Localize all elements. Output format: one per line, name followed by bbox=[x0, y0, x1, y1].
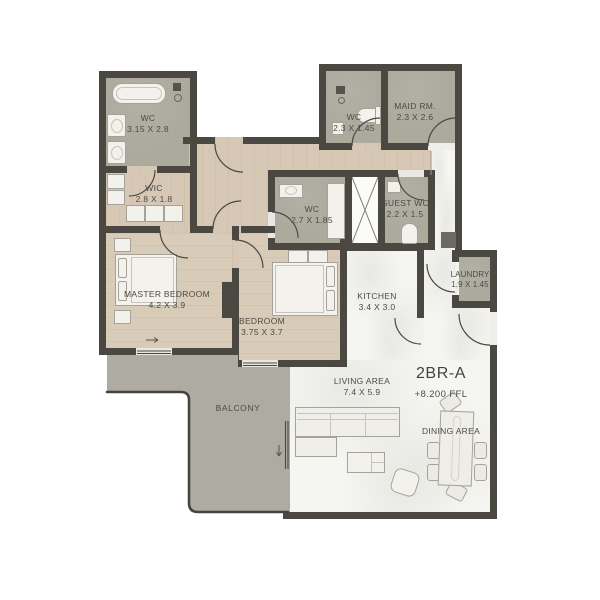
sofa-cushion-line bbox=[365, 414, 366, 436]
wall-segment bbox=[106, 166, 127, 173]
label-wc-shared: WC 2.7 X 1.85 bbox=[276, 204, 348, 226]
bathtub-basin bbox=[116, 87, 162, 100]
room-dims: 2.8 X 1.8 bbox=[112, 194, 196, 205]
wall-column bbox=[222, 282, 239, 318]
sliding-door-master bbox=[136, 348, 172, 355]
room-name: MASTER BEDROOM bbox=[124, 289, 210, 300]
room-name: BALCONY bbox=[200, 403, 276, 414]
door-opening bbox=[232, 240, 239, 268]
room-name: WC bbox=[276, 204, 348, 215]
hallway-corridor bbox=[189, 176, 268, 233]
label-bedroom: BEDROOM 3.75 X 3.7 bbox=[219, 316, 305, 338]
door-opening bbox=[352, 143, 382, 151]
label-wc-small: WC 2.3 X 1.45 bbox=[324, 112, 384, 134]
room-name: WC bbox=[324, 112, 384, 123]
wall-segment bbox=[232, 226, 239, 240]
wall-segment bbox=[388, 143, 428, 150]
wall-segment bbox=[283, 367, 290, 420]
door-opening bbox=[428, 143, 456, 150]
pillow bbox=[118, 258, 127, 278]
room-name: WC bbox=[106, 113, 190, 124]
dining-chair bbox=[474, 442, 487, 459]
sliding-door-living bbox=[283, 420, 290, 470]
floor-plan: WC 3.15 X 2.8 WIC 2.8 X 1.8 MASTER BEDRO… bbox=[0, 0, 600, 600]
wall-segment bbox=[268, 170, 275, 212]
door-opening bbox=[398, 170, 424, 177]
wall-segment bbox=[417, 244, 424, 318]
wall-segment bbox=[99, 348, 136, 355]
door-opening bbox=[160, 226, 190, 233]
closet-shelf bbox=[164, 205, 183, 222]
unit-type: 2BR-A bbox=[395, 365, 487, 383]
wall-segment bbox=[319, 64, 462, 71]
wall-segment bbox=[172, 348, 239, 355]
room-dims: 2.3 X 1.45 bbox=[324, 123, 384, 134]
wall-segment bbox=[157, 166, 197, 173]
sink-basin bbox=[285, 186, 297, 195]
door-opening bbox=[268, 212, 275, 238]
label-wc-master: WC 3.15 X 2.8 bbox=[106, 113, 190, 135]
room-dims: 7.4 X 5.9 bbox=[320, 387, 404, 398]
wall-segment bbox=[340, 244, 424, 251]
sofa-seat-line bbox=[297, 419, 398, 420]
room-dims: 1.9 X 1.45 bbox=[438, 280, 502, 290]
room-dims: 2.2 X 1.5 bbox=[369, 209, 441, 220]
sliding-door-bedroom bbox=[242, 360, 278, 367]
wall-segment bbox=[452, 250, 459, 262]
room-name: GUEST WC bbox=[369, 198, 441, 209]
label-master: MASTER BEDROOM 4.2 X 3.9 bbox=[124, 289, 210, 311]
sink-basin bbox=[111, 146, 123, 160]
closet-shelf bbox=[145, 205, 164, 222]
pillow bbox=[326, 290, 335, 311]
nightstand bbox=[114, 310, 131, 324]
foyer-cabinet bbox=[441, 232, 456, 248]
sofa-chaise bbox=[295, 437, 337, 457]
closet-shelf bbox=[126, 205, 145, 222]
shower-drain-icon bbox=[174, 94, 182, 102]
label-guest-wc: GUEST WC 2.2 X 1.5 bbox=[369, 198, 441, 220]
wall-segment bbox=[232, 360, 242, 367]
wall-segment bbox=[99, 71, 197, 78]
room-dims: 4.2 X 3.9 bbox=[124, 300, 210, 311]
label-balcony: BALCONY bbox=[200, 403, 276, 414]
label-maid: MAID RM. 2.3 X 2.6 bbox=[381, 101, 449, 123]
shower-icon bbox=[173, 83, 181, 91]
wall-segment bbox=[106, 226, 160, 233]
door-arrow bbox=[277, 445, 282, 456]
sofa-back-line bbox=[297, 413, 398, 414]
bed-duvet bbox=[275, 265, 324, 313]
pillow bbox=[326, 266, 335, 287]
room-name: BEDROOM bbox=[219, 316, 305, 327]
wall-segment bbox=[283, 512, 497, 519]
wall-segment bbox=[490, 301, 497, 312]
room-dims: 2.3 X 2.6 bbox=[381, 112, 449, 123]
wall-segment bbox=[319, 64, 326, 150]
room-dims: 3.4 X 3.0 bbox=[341, 302, 413, 313]
entry-door-opening bbox=[490, 312, 497, 345]
toilet bbox=[401, 223, 418, 244]
room-name: MAID RM. bbox=[381, 101, 449, 112]
wall-segment bbox=[190, 71, 197, 233]
wall-segment bbox=[183, 137, 215, 144]
unit-label: 2BR-A +8.200 FFL bbox=[395, 365, 487, 400]
wall-segment bbox=[455, 64, 462, 257]
dining-chair bbox=[474, 464, 487, 481]
room-name: LAUNDRY bbox=[438, 270, 502, 280]
wall-segment bbox=[241, 226, 275, 233]
room-dims: 2.7 X 1.85 bbox=[276, 215, 348, 226]
wall-segment bbox=[190, 226, 213, 233]
room-dims: 3.15 X 2.8 bbox=[106, 124, 190, 135]
door-opening bbox=[127, 166, 157, 173]
unit-ffl: +8.200 FFL bbox=[395, 389, 487, 400]
room-dims: 3.75 X 3.7 bbox=[219, 327, 305, 338]
label-dining: DINING AREA bbox=[405, 426, 497, 437]
sofa-cushion-line bbox=[330, 414, 331, 436]
sink bbox=[387, 181, 401, 193]
nightstand bbox=[114, 238, 131, 252]
label-living: LIVING AREA 7.4 X 5.9 bbox=[320, 376, 404, 398]
room-name: WIC bbox=[112, 183, 196, 194]
wall-segment bbox=[278, 360, 347, 367]
label-laundry: LAUNDRY 1.9 X 1.45 bbox=[438, 270, 502, 291]
door-opening bbox=[215, 137, 243, 144]
room-name: KITCHEN bbox=[341, 291, 413, 302]
coffee-table-line bbox=[372, 462, 384, 463]
balcony-floor bbox=[107, 355, 290, 512]
room-name: LIVING AREA bbox=[320, 376, 404, 387]
shower-icon bbox=[336, 86, 345, 94]
wall-segment bbox=[243, 137, 326, 144]
room-name: DINING AREA bbox=[405, 426, 497, 437]
wall-segment bbox=[283, 470, 290, 512]
label-wic: WIC 2.8 X 1.8 bbox=[112, 183, 196, 205]
wall-segment bbox=[99, 71, 106, 355]
label-kitchen: KITCHEN 3.4 X 3.0 bbox=[341, 291, 413, 313]
sofa bbox=[295, 407, 400, 437]
shower-drain-icon bbox=[338, 97, 345, 104]
